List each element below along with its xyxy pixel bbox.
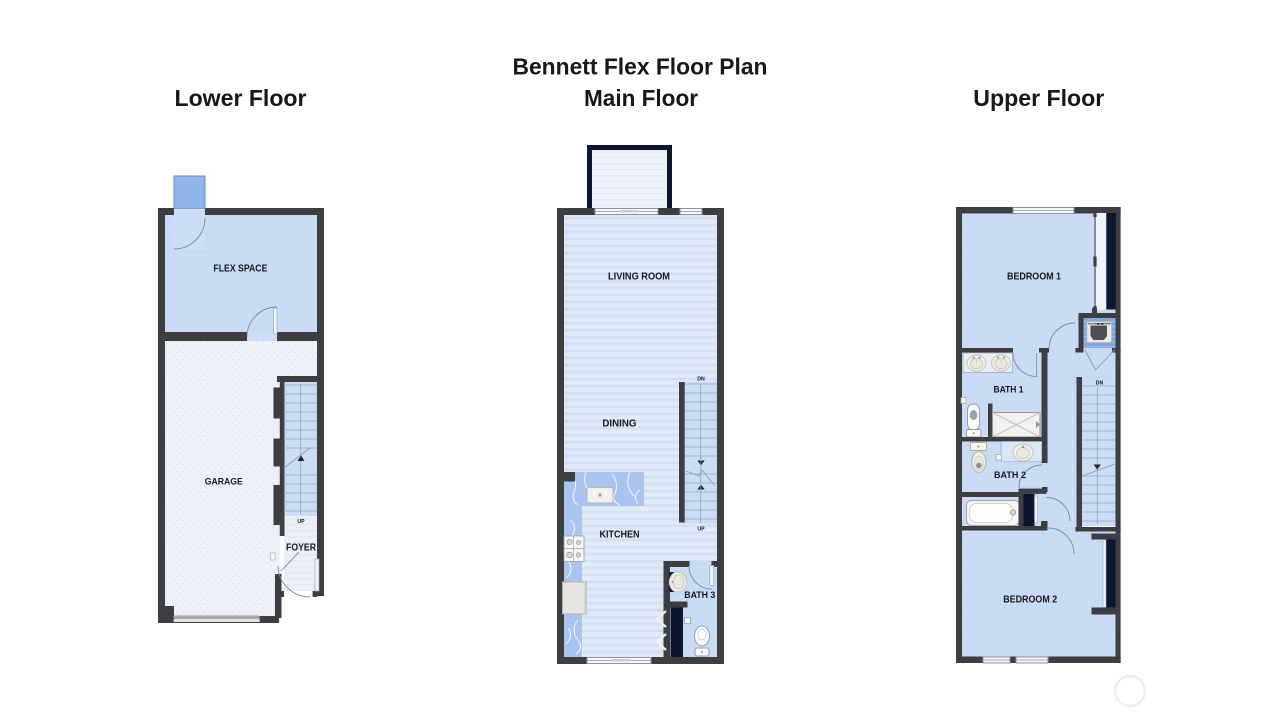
svg-text:LIVING ROOM: LIVING ROOM xyxy=(608,272,670,283)
svg-text:DINING: DINING xyxy=(602,419,636,430)
svg-text:GARAGE: GARAGE xyxy=(205,477,243,488)
svg-text:FLEX SPACE: FLEX SPACE xyxy=(213,262,267,274)
svg-text:DN: DN xyxy=(1096,381,1104,387)
svg-text:FOYER: FOYER xyxy=(286,543,316,554)
svg-text:Main Floor: Main Floor xyxy=(584,85,698,111)
svg-text:Lower Floor: Lower Floor xyxy=(175,85,307,111)
svg-text:BATH 2: BATH 2 xyxy=(994,470,1026,481)
svg-text:UP: UP xyxy=(297,519,305,525)
svg-text:Bennett Flex Floor Plan: Bennett Flex Floor Plan xyxy=(513,54,768,80)
svg-text:BATH 3: BATH 3 xyxy=(684,590,715,601)
svg-text:BEDROOM 2: BEDROOM 2 xyxy=(1003,594,1057,605)
svg-text:UP: UP xyxy=(697,527,705,533)
svg-text:KITCHEN: KITCHEN xyxy=(600,530,640,541)
svg-text:DN: DN xyxy=(697,377,705,383)
svg-text:BEDROOM 1: BEDROOM 1 xyxy=(1007,272,1061,283)
svg-text:BATH 1: BATH 1 xyxy=(994,385,1025,396)
svg-text:Upper Floor: Upper Floor xyxy=(973,85,1104,111)
